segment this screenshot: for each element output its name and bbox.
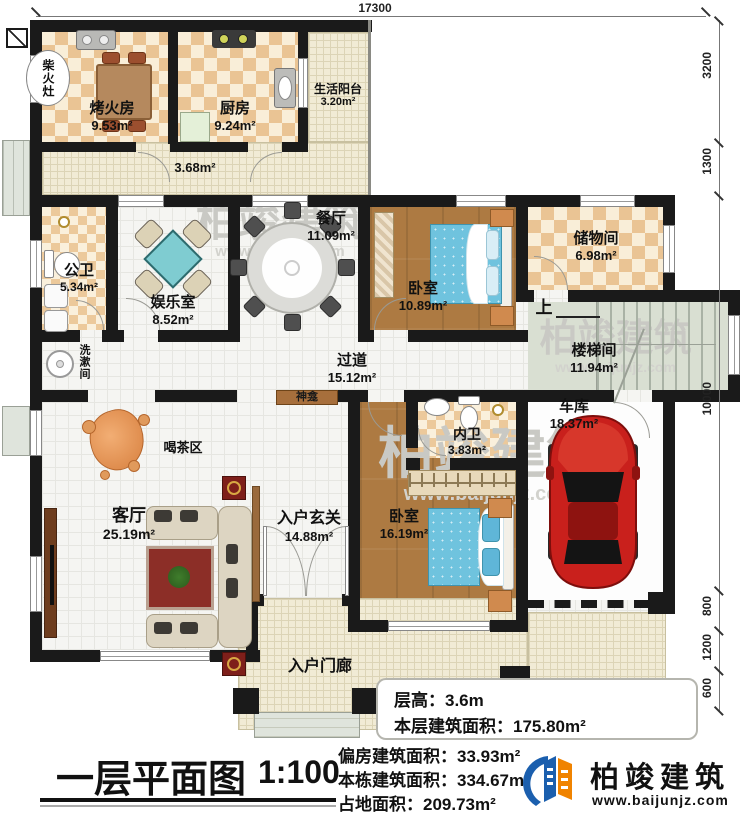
room-label-loutijian: 楼梯间 11.94m² <box>548 342 640 375</box>
dim-label-right: 800 <box>700 596 714 616</box>
title-scale: 1:100 <box>258 754 340 791</box>
tea-stool-icon <box>100 470 110 480</box>
side-table-ring <box>227 657 241 671</box>
room-area: 15.12m² <box>312 370 392 385</box>
wall <box>568 290 740 302</box>
room-label-chufang: 厨房 9.24m² <box>190 100 280 133</box>
window <box>30 556 42 612</box>
wall <box>158 330 230 342</box>
room-name: 储物间 <box>550 230 642 248</box>
stat-value: 209.73m² <box>423 795 496 814</box>
room-name: 卧室 <box>385 280 461 298</box>
dim-label-top: 17300 <box>340 1 410 15</box>
room-name: 车库 <box>536 398 612 416</box>
up-arrow-icon <box>556 316 600 318</box>
dim-label-right: 3200 <box>700 52 714 79</box>
nightstand-icon <box>488 498 512 518</box>
room-area: 11.09m² <box>288 228 374 243</box>
pillow-icon <box>486 266 499 296</box>
room-label-kaohuofang: 烤火房 9.53m² <box>62 100 162 133</box>
stat-line: 本栋建筑面积：334.67m² <box>338 766 530 791</box>
chimney-icon <box>6 28 28 48</box>
room-label-hechaqu: 喝茶区 <box>150 440 216 455</box>
room-area: 3.20m² <box>304 96 372 109</box>
room-label-neiwei: 内卫 3.83m² <box>434 426 500 457</box>
pillow-icon <box>482 514 500 542</box>
drain-icon <box>492 404 504 416</box>
wall <box>30 20 42 212</box>
stat-label: 偏房建筑面积： <box>338 747 457 766</box>
wall <box>490 620 528 632</box>
wall <box>155 390 237 402</box>
chair-icon <box>284 314 301 331</box>
porch-steps-icon <box>254 712 360 738</box>
stat-line: 本层建筑面积：175.80m² <box>394 712 586 737</box>
side-table-icon <box>222 652 246 676</box>
page-title: 一层平面图 <box>56 748 246 803</box>
room-area: 9.53m² <box>62 118 162 133</box>
up-text: 上 <box>536 298 553 317</box>
room-label-woshi1: 卧室 10.89m² <box>385 280 461 313</box>
company-url: www.baijunjz.com <box>592 792 729 808</box>
window <box>456 195 506 207</box>
lazy-susan-icon <box>284 260 300 276</box>
stat-label: 本层建筑面积： <box>394 717 513 736</box>
chaihuozao-circle: 柴火灶 <box>26 50 70 106</box>
wall <box>42 390 88 402</box>
stat-label: 本栋建筑面积： <box>338 771 457 790</box>
wall <box>102 330 124 342</box>
room-label-gongwei: 公卫 5.34m² <box>48 262 110 294</box>
room-name: 入户玄关 <box>260 510 358 529</box>
room-label-xuanguan: 入户玄关 14.88m² <box>260 510 358 544</box>
nightstand-icon <box>488 590 512 612</box>
toilet-tank-icon <box>458 396 480 405</box>
stat-value: 33.93m² <box>457 747 520 766</box>
wall <box>358 330 374 342</box>
porch-column <box>233 688 259 714</box>
room-area: 25.19m² <box>86 526 172 543</box>
dim-label-right: 1300 <box>700 148 714 175</box>
room-label-shenkan: 神龛 <box>280 391 334 404</box>
burner-icon <box>82 35 92 45</box>
tea-stool-icon <box>138 414 150 426</box>
room-name: 厨房 <box>190 100 280 118</box>
wall <box>648 592 675 614</box>
sofa-pillow-icon <box>180 622 198 634</box>
room-label-chuwujian: 储物间 6.98m² <box>550 230 642 263</box>
sofa-pillow-icon <box>154 622 172 634</box>
burner-icon <box>219 34 229 44</box>
window <box>388 621 490 631</box>
wall <box>282 142 308 152</box>
room-label-woshi2: 卧室 16.19m² <box>366 508 442 541</box>
washbasin-drain-icon <box>56 360 64 368</box>
garage-door-dashed <box>528 600 650 608</box>
window <box>100 651 210 661</box>
window <box>663 225 675 273</box>
room-area: 11.94m² <box>548 360 640 375</box>
wall <box>450 458 516 470</box>
floor-plan: 柏竣建筑 www.baijunjz.com 柏竣建筑 www.baijunjz.… <box>0 0 750 823</box>
room-area: 10.89m² <box>385 298 461 313</box>
wall <box>516 390 528 632</box>
room-name: 洗漱间 <box>78 344 90 380</box>
room-name: 客厅 <box>86 506 172 526</box>
tv-icon <box>50 545 54 605</box>
window <box>728 315 740 375</box>
window <box>118 195 164 207</box>
burner-icon <box>238 34 248 44</box>
basin-icon <box>424 398 450 416</box>
wall <box>348 390 368 402</box>
wall <box>30 650 100 662</box>
room-name: 餐厅 <box>288 210 374 228</box>
room-name: 生活阳台 <box>304 82 372 96</box>
burner-icon <box>99 35 109 45</box>
bed-sheet-icon <box>466 224 488 304</box>
room-label-canting: 餐厅 11.09m² <box>288 210 374 243</box>
stat-value: 175.80m² <box>513 717 586 736</box>
wall <box>170 142 248 152</box>
sofa-pillow-icon <box>226 544 238 564</box>
dim-line-right <box>719 20 720 712</box>
title-underline-thin <box>40 805 336 807</box>
wall <box>42 142 136 152</box>
company-name: 柏竣建筑 <box>590 754 730 796</box>
wall <box>408 330 528 342</box>
wall <box>406 402 418 448</box>
room-area: 9.24m² <box>190 118 280 133</box>
stair-up-label: 上 <box>532 298 556 318</box>
side-table-icon <box>222 476 246 500</box>
pillow-icon <box>486 230 499 260</box>
stool-icon <box>102 52 120 64</box>
room-label-cheku: 车库 18.37m² <box>536 398 612 431</box>
side-table-ring <box>227 481 241 495</box>
wall <box>168 32 178 144</box>
company-logo-icon <box>522 750 584 814</box>
room-name: 神龛 <box>296 391 318 403</box>
room-name: 楼梯间 <box>548 342 640 360</box>
room-name: 过道 <box>312 352 392 370</box>
room-label-yangtai: 生活阳台 3.20m² <box>304 82 372 109</box>
sofa-pillow-icon <box>180 510 198 522</box>
stat-label: 占地面积： <box>338 795 423 814</box>
sofa-icon <box>218 506 252 648</box>
wall <box>406 458 420 470</box>
room-area: 6.98m² <box>550 248 642 263</box>
sink-basin-icon <box>278 76 292 100</box>
drain-icon <box>58 216 70 228</box>
room-name: 入户门廊 <box>288 658 352 675</box>
room-name: 娱乐室 <box>130 294 216 312</box>
room-area: 8.52m² <box>130 312 216 327</box>
room-area: 3.68m² <box>158 160 232 175</box>
pillow-icon <box>482 548 500 576</box>
window <box>30 410 42 456</box>
tea-stool-icon <box>82 420 96 434</box>
nightstand-icon <box>490 306 514 326</box>
stat-label: 层高： <box>394 691 445 710</box>
stat-line: 占地面积：209.73m² <box>338 790 496 815</box>
stat-line: 偏房建筑面积：33.93m² <box>338 742 520 767</box>
wall <box>348 620 388 632</box>
partition-screen-icon <box>252 486 260 602</box>
room-name: 烤火房 <box>62 100 162 118</box>
sofa-pillow-icon <box>226 578 238 598</box>
stat-value: 3.6m <box>445 691 484 710</box>
washer-icon <box>44 310 68 332</box>
room-label-guodao: 过道 15.12m² <box>312 352 392 385</box>
chair-icon <box>338 259 355 276</box>
porch-column <box>352 688 378 714</box>
wall <box>516 195 528 302</box>
room-area: 16.19m² <box>366 526 442 541</box>
room-area: 5.34m² <box>48 280 110 294</box>
dim-label-right: 600 <box>700 678 714 698</box>
stat-value: 334.67m² <box>457 771 530 790</box>
room-label-pianfang-corridor: 3.68m² <box>158 160 232 175</box>
stat-line: 层高：3.6m <box>394 686 484 711</box>
dim-label-right: 10000 <box>700 382 714 415</box>
room-label-yuleshi: 娱乐室 8.52m² <box>130 294 216 327</box>
room-label-xishujian: 洗漱间 <box>78 344 89 380</box>
title-underline <box>40 798 336 802</box>
car-icon <box>544 414 642 590</box>
plant-icon <box>168 566 190 588</box>
room-area: 3.83m² <box>434 443 500 457</box>
window <box>30 240 42 288</box>
side-slab-icon <box>2 406 30 456</box>
chaihuozao-label: 柴火灶 <box>42 59 54 98</box>
room-name: 喝茶区 <box>163 440 202 455</box>
tea-stool-icon <box>128 460 140 472</box>
room-area: 14.88m² <box>260 529 358 544</box>
dim-line-top <box>36 16 706 17</box>
room-label-keting: 客厅 25.19m² <box>86 506 172 543</box>
chair-icon <box>230 259 247 276</box>
room-area: 18.37m² <box>536 416 612 431</box>
wall <box>663 390 675 602</box>
room-label-menlang: 入户门廊 <box>262 658 378 677</box>
side-steps-icon <box>2 140 30 216</box>
room-name: 内卫 <box>434 426 500 443</box>
dim-label-right: 1200 <box>700 634 714 661</box>
stool-icon <box>128 52 146 64</box>
window <box>580 195 635 207</box>
room-name: 公卫 <box>48 262 110 280</box>
room-name: 卧室 <box>366 508 442 526</box>
closet-rail-icon <box>408 470 516 496</box>
nightstand-icon <box>490 209 514 227</box>
